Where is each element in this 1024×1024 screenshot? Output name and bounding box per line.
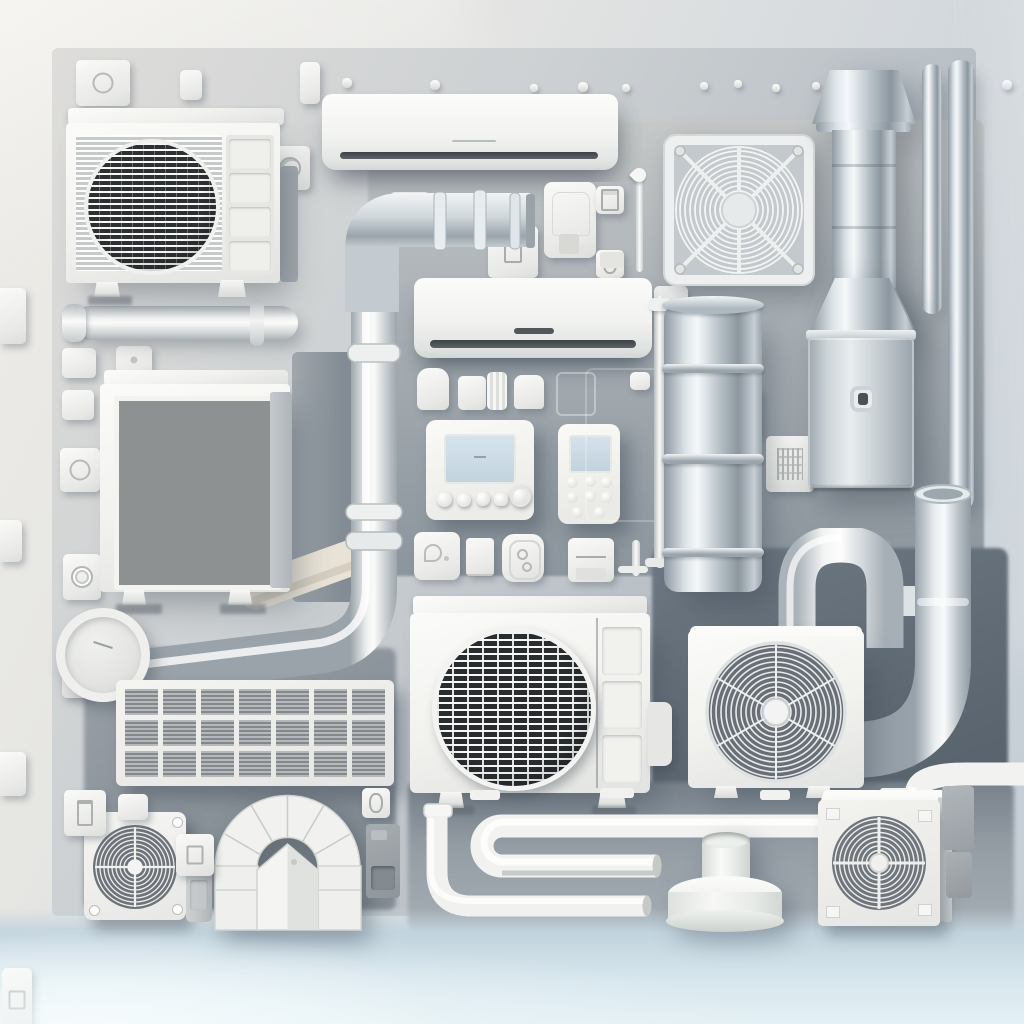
filter-cabinet xyxy=(100,370,300,620)
ac-vent-slot xyxy=(340,152,598,159)
remote-button xyxy=(572,507,583,518)
remote-button xyxy=(567,477,578,488)
fastener-nub xyxy=(342,78,352,88)
grille-cells xyxy=(125,689,385,777)
fastener-nub xyxy=(578,82,588,92)
corner-tab xyxy=(826,906,840,918)
edge-fitting xyxy=(0,288,26,344)
condenser-foot xyxy=(218,280,246,297)
bottom-left-fittings xyxy=(62,786,218,844)
panel-slot xyxy=(229,207,271,237)
fastener-nub xyxy=(530,84,538,92)
handler-funnel xyxy=(810,278,914,332)
condenser-pad xyxy=(88,296,132,305)
filter-foot xyxy=(228,590,252,605)
socket-hole xyxy=(517,549,528,560)
fastener-nub xyxy=(622,84,630,92)
j-duct-seam xyxy=(917,598,969,606)
junction-box xyxy=(366,824,400,898)
panel-slot xyxy=(229,139,271,169)
ac-badge xyxy=(514,328,554,334)
switch-cap xyxy=(76,60,130,106)
elbow-coupling xyxy=(474,190,486,250)
low-pipe-flange xyxy=(424,804,452,817)
end-cap xyxy=(514,375,544,409)
corner-tab xyxy=(826,808,840,820)
mount-tab xyxy=(600,252,624,268)
collar-base-rim xyxy=(666,910,784,932)
junction-clip xyxy=(371,830,387,840)
chimney-neck xyxy=(832,130,896,290)
panel-slot xyxy=(190,880,208,910)
edge-fitting xyxy=(0,520,22,562)
roof-vent-collar xyxy=(668,836,786,936)
grille-cell xyxy=(125,689,158,715)
panel-slot xyxy=(602,627,642,675)
switch-row xyxy=(412,530,648,582)
condenser-fan-circle xyxy=(84,139,220,275)
panel-slot xyxy=(602,681,642,729)
chimney-cap xyxy=(812,70,916,124)
metal-pipe xyxy=(922,64,942,314)
spiral-guard-box xyxy=(828,808,930,918)
trim-tab xyxy=(300,62,320,104)
sensor-set xyxy=(544,176,644,272)
side-bracket xyxy=(648,702,672,766)
filter-media xyxy=(114,396,282,590)
floor-glow xyxy=(0,930,440,1024)
arch-leg xyxy=(215,866,258,930)
neck-seam xyxy=(832,226,896,229)
panel-slot xyxy=(229,241,271,271)
socket-face xyxy=(509,540,541,580)
arch-leg xyxy=(318,866,361,930)
end-cap xyxy=(487,372,507,410)
box-fan-unit xyxy=(818,790,952,934)
corner-tab xyxy=(918,904,932,916)
arch-side-switch xyxy=(360,788,402,900)
condenser-side-panel xyxy=(226,135,274,275)
screw-icon xyxy=(172,904,183,915)
collar-neck-opening xyxy=(702,832,750,848)
socket-hole xyxy=(522,562,532,572)
slot-switch xyxy=(568,538,614,582)
thermostat-button xyxy=(494,493,508,506)
screen-dash xyxy=(474,456,486,458)
filter-side-panel xyxy=(270,392,292,588)
fan-hub xyxy=(722,193,756,227)
thermostat-button xyxy=(457,493,471,507)
plate-dot xyxy=(444,556,449,561)
knob-core xyxy=(858,393,868,405)
edge-fitting xyxy=(0,752,26,796)
filter-foot xyxy=(122,590,146,605)
switch-plate xyxy=(64,790,106,836)
sensor-window xyxy=(552,192,590,236)
fastener-nub xyxy=(430,80,440,90)
square-fan-guard xyxy=(663,134,815,286)
motion-sensor xyxy=(544,182,596,258)
arch-duct xyxy=(208,786,368,932)
ac-vent-slot xyxy=(430,340,636,348)
sensor-notch xyxy=(559,234,579,254)
screw-icon xyxy=(89,905,100,916)
condenser-side-sliver xyxy=(280,166,298,282)
ring-seam xyxy=(662,364,764,373)
cylinder-rim xyxy=(662,296,764,314)
sight-knob xyxy=(850,386,876,412)
elbow-end-cap xyxy=(526,194,535,248)
elbow-coupling xyxy=(434,192,446,250)
gray-block xyxy=(946,852,972,898)
guard-hub xyxy=(870,854,888,872)
ring-fan-top-face xyxy=(690,626,862,636)
j-duct-rim-inner xyxy=(923,489,963,500)
ac-seam xyxy=(452,140,496,142)
panel-slot xyxy=(229,173,271,203)
gable-knob xyxy=(291,859,297,865)
thermostat xyxy=(426,420,534,520)
gray-block xyxy=(942,786,974,850)
fastener-nub xyxy=(700,82,708,90)
return-air-grille xyxy=(116,680,394,786)
filter-pad xyxy=(220,604,266,614)
gray-junction-blocks xyxy=(942,786,976,900)
thermostat-button xyxy=(437,492,452,507)
small-cap xyxy=(180,70,202,100)
cylinder-duct xyxy=(664,296,764,596)
thermostat-screen xyxy=(444,434,516,484)
elbow-coupling xyxy=(510,193,520,249)
slot-line xyxy=(576,556,606,558)
switch-cap xyxy=(362,788,390,818)
blank-cap xyxy=(118,794,148,820)
wall-ac-upper xyxy=(322,94,618,170)
switch-button xyxy=(596,186,624,214)
condenser-unit-top-left xyxy=(66,108,306,320)
dial-needle xyxy=(93,641,113,649)
rocker-switch xyxy=(466,538,494,576)
capillary-rod xyxy=(636,178,643,272)
slot-drawer xyxy=(576,568,606,580)
wall-plate xyxy=(414,532,460,580)
metal-pipe xyxy=(948,60,974,510)
wall-ac-lower xyxy=(414,278,652,358)
remote-button xyxy=(567,492,578,503)
hvac-collage-scene xyxy=(0,0,1024,1024)
fastener-nub xyxy=(734,80,742,88)
thermostat-button xyxy=(476,492,490,506)
corner-tab xyxy=(918,810,932,822)
guard-hub xyxy=(128,860,143,875)
handler-body xyxy=(808,338,914,488)
ring-seam xyxy=(662,548,764,557)
fastener-nub xyxy=(1002,80,1012,90)
end-cap xyxy=(458,376,486,410)
socket-plate xyxy=(502,534,544,582)
j-duct-tube xyxy=(852,496,943,750)
low-pipe-end-cut xyxy=(643,896,652,917)
frame-cap xyxy=(176,834,214,876)
u-pipe-end-cut xyxy=(653,855,662,878)
air-handler-box xyxy=(806,278,918,494)
junction-recess xyxy=(371,866,395,890)
neck-seam xyxy=(832,164,896,167)
condenser-foot xyxy=(94,282,120,297)
plate-mark xyxy=(424,544,442,562)
guard-hub xyxy=(763,699,789,725)
thermostat-dial xyxy=(510,486,531,507)
pipe-stack-right xyxy=(922,60,974,512)
ring-seam xyxy=(662,454,764,464)
end-cap xyxy=(417,368,449,410)
fastener-nub xyxy=(772,84,780,92)
